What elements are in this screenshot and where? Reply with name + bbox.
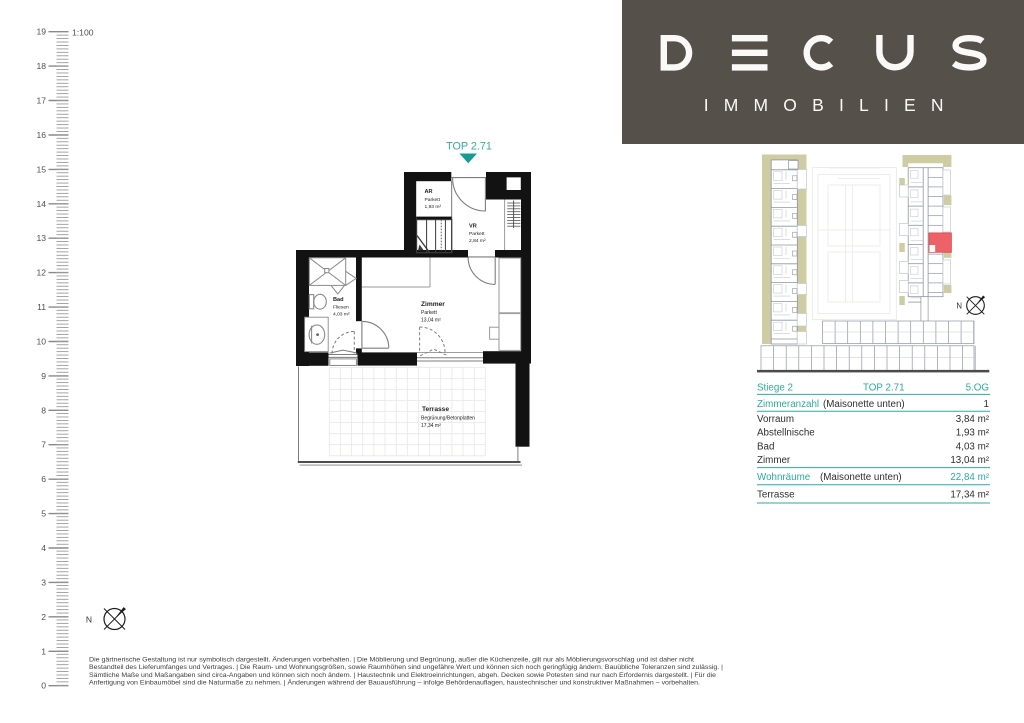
- svg-text:8: 8: [41, 405, 46, 415]
- svg-text:Stiege 2: Stiege 2: [757, 383, 793, 394]
- svg-text:13,04 m²: 13,04 m²: [950, 455, 989, 466]
- svg-text:Anfertigung von Einbaumöbel si: Anfertigung von Einbaumöbel sind die Nat…: [89, 680, 700, 687]
- svg-text:Bestandteil des Lieferumfanges: Bestandteil des Lieferumfanges und Vertr…: [89, 664, 723, 671]
- svg-text:Bad: Bad: [757, 441, 774, 452]
- svg-text:3: 3: [41, 577, 46, 587]
- svg-text:22,84 m²: 22,84 m²: [950, 472, 989, 483]
- svg-text:Die gärtnerische Gestaltung is: Die gärtnerische Gestaltung ist nur symb…: [89, 657, 694, 664]
- svg-text:12: 12: [36, 268, 46, 278]
- svg-text:15: 15: [36, 164, 46, 174]
- svg-text:Abstellnische: Abstellnische: [757, 428, 815, 439]
- svg-text:VR: VR: [469, 224, 477, 230]
- svg-text:Bad: Bad: [333, 297, 344, 303]
- svg-text:(Maisonette unten): (Maisonette unten): [823, 399, 905, 410]
- svg-text:2: 2: [41, 612, 46, 622]
- svg-text:1,93 m²: 1,93 m²: [425, 204, 442, 210]
- svg-text:11: 11: [37, 302, 46, 312]
- svg-text:19: 19: [36, 27, 46, 37]
- svg-text:Zimmeranzahl: Zimmeranzahl: [757, 399, 819, 410]
- svg-text:N: N: [956, 302, 962, 311]
- svg-text:10: 10: [36, 337, 46, 347]
- svg-text:Begrünung/Betonplatten: Begrünung/Betonplatten: [421, 416, 475, 422]
- svg-text:1,93 m²: 1,93 m²: [956, 428, 990, 439]
- svg-text:13,04 m²: 13,04 m²: [421, 318, 441, 324]
- svg-text:Zimmer: Zimmer: [757, 455, 791, 466]
- svg-text:IMMOBILIEN: IMMOBILIEN: [704, 95, 959, 115]
- svg-text:Terrasse: Terrasse: [757, 490, 795, 501]
- svg-text:3,84 m²: 3,84 m²: [956, 414, 990, 425]
- svg-text:14: 14: [36, 199, 46, 209]
- svg-text:Parkett: Parkett: [469, 231, 485, 237]
- svg-text:Terrasse: Terrasse: [422, 406, 449, 413]
- svg-text:Wohnräume: Wohnräume: [757, 472, 811, 483]
- svg-text:17: 17: [36, 96, 46, 106]
- svg-text:Zimmer: Zimmer: [421, 301, 445, 308]
- svg-text:18: 18: [36, 61, 46, 71]
- svg-text:Vorraum: Vorraum: [757, 414, 794, 425]
- svg-text:N: N: [86, 615, 92, 625]
- svg-text:Parkett: Parkett: [425, 197, 441, 203]
- svg-text:TOP 2.71: TOP 2.71: [863, 383, 905, 394]
- svg-text:Parkett: Parkett: [421, 310, 437, 316]
- svg-text:17,34 m²: 17,34 m²: [950, 490, 989, 501]
- svg-text:TOP 2.71: TOP 2.71: [446, 141, 492, 153]
- svg-text:4: 4: [41, 543, 46, 553]
- svg-text:13: 13: [36, 233, 46, 243]
- svg-text:4,03 m²: 4,03 m²: [956, 441, 990, 452]
- svg-text:1: 1: [984, 399, 989, 410]
- svg-text:0: 0: [41, 681, 46, 691]
- svg-text:7: 7: [41, 440, 46, 450]
- svg-text:9: 9: [41, 371, 46, 381]
- svg-text:5: 5: [41, 509, 46, 519]
- svg-text:AR: AR: [425, 189, 433, 195]
- svg-text:6: 6: [41, 474, 46, 484]
- svg-text:5.OG: 5.OG: [966, 383, 989, 394]
- svg-text:(Maisonette unten): (Maisonette unten): [820, 472, 902, 483]
- svg-text:17,34 m²: 17,34 m²: [421, 423, 441, 429]
- svg-text:1:100: 1:100: [72, 28, 94, 38]
- svg-text:16: 16: [36, 130, 46, 140]
- svg-text:2,84 m²: 2,84 m²: [469, 238, 486, 244]
- svg-text:1: 1: [41, 646, 46, 656]
- svg-text:4,03 m²: 4,03 m²: [333, 312, 350, 318]
- svg-text:Fliesen: Fliesen: [333, 305, 349, 311]
- svg-text:Sämtliche Maße und Maßangaben: Sämtliche Maße und Maßangaben sind circa…: [89, 672, 717, 679]
